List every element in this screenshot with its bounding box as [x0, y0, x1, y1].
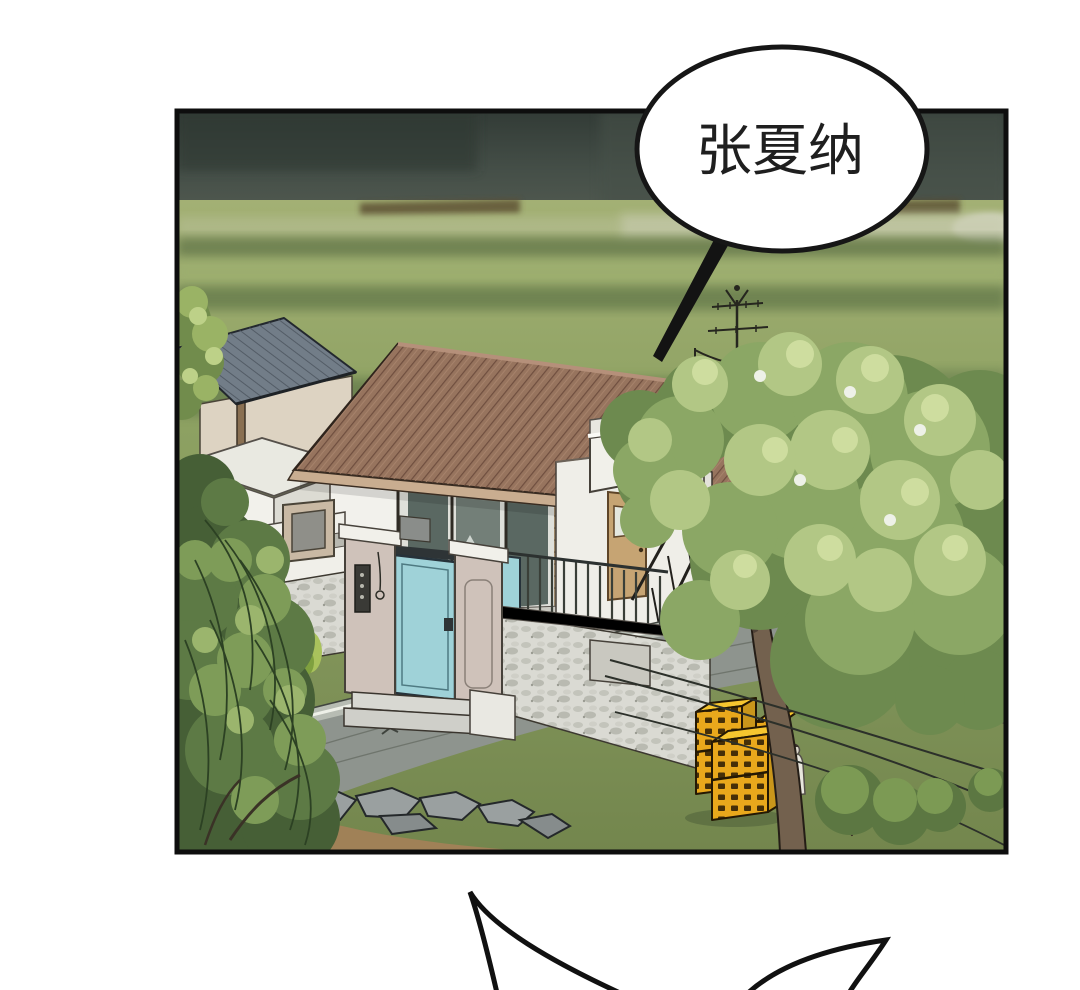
cinder-blocks	[400, 516, 430, 542]
speech-bubble-text: 张夏纳	[696, 119, 864, 184]
teal-fence-panel	[502, 556, 520, 612]
shout-bubble	[470, 892, 886, 990]
gate-lock	[444, 618, 453, 631]
comic-page: 张夏纳	[0, 0, 1080, 990]
gate-pillar-left	[345, 532, 395, 700]
gate	[339, 516, 515, 740]
shout-bubble-left-spike	[470, 892, 620, 990]
comic-panel-illustration: 张夏纳	[0, 0, 1080, 990]
door-knob	[639, 548, 643, 552]
hedgerow-band	[177, 286, 1006, 310]
hedgerow-band	[177, 237, 1006, 258]
shout-bubble-right-spike	[748, 940, 886, 990]
intercom	[355, 565, 370, 612]
